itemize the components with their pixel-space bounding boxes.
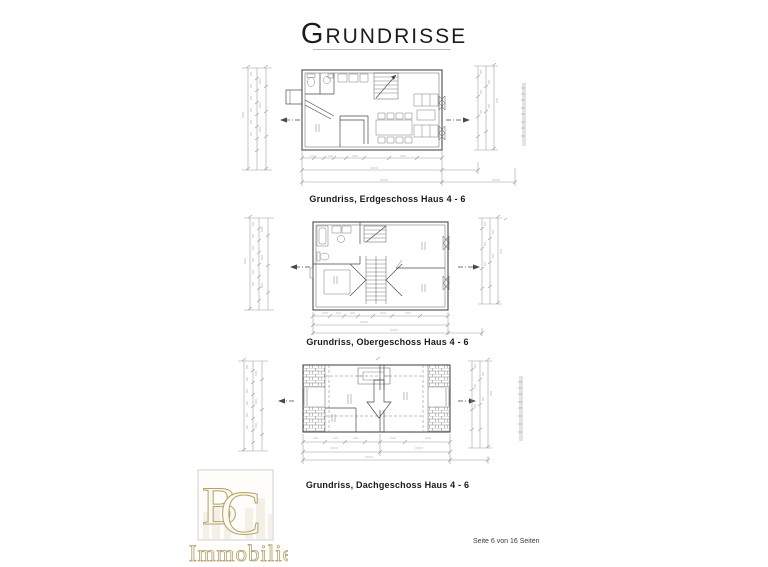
- walls: [313, 222, 448, 310]
- company-logo: B C Immobilien: [188, 466, 288, 566]
- dimension-chain-right: [478, 215, 507, 304]
- dimension-chain-right: [468, 358, 522, 448]
- dimension-chain-bottom: [301, 357, 490, 464]
- floorplan-erdgeschoss-drawing: [230, 58, 545, 193]
- figure-caption: Grundriss, Obergeschoss Haus 4 - 6: [230, 337, 545, 347]
- dimension-chain-bottom: [300, 150, 517, 186]
- page-title: Grundrisse: [0, 18, 768, 51]
- floorplan-dachgeschoss: [230, 356, 545, 478]
- logo-monogram-c: C: [220, 480, 261, 548]
- floorplan-dachgeschoss-drawing: [230, 356, 545, 478]
- floorplan-erdgeschoss: [230, 58, 545, 193]
- company-logo-drawing: B C Immobilien: [188, 466, 288, 566]
- figure-caption: Grundriss, Erdgeschoss Haus 4 - 6: [230, 194, 545, 204]
- furniture: [310, 226, 425, 304]
- dimension-chain-bottom: [311, 312, 484, 336]
- document-page: Grundrisse: [0, 0, 768, 567]
- page-footer: Seite 6 von 16 Seiten: [473, 538, 540, 545]
- furniture: [307, 73, 438, 143]
- logo-name: Immobilien: [189, 541, 288, 566]
- dimension-chain-left: [238, 358, 268, 451]
- floorplan-obergeschoss: [230, 212, 545, 336]
- stair-arrow: [367, 380, 391, 418]
- dimension-chain-left: [244, 215, 274, 310]
- floorplan-obergeschoss-drawing: [230, 212, 545, 336]
- dimension-chain-right: [474, 63, 525, 150]
- direction-arrows: [290, 264, 480, 269]
- title-underline: [313, 49, 451, 50]
- dimension-chain-left: [242, 65, 272, 170]
- walls: [302, 365, 451, 432]
